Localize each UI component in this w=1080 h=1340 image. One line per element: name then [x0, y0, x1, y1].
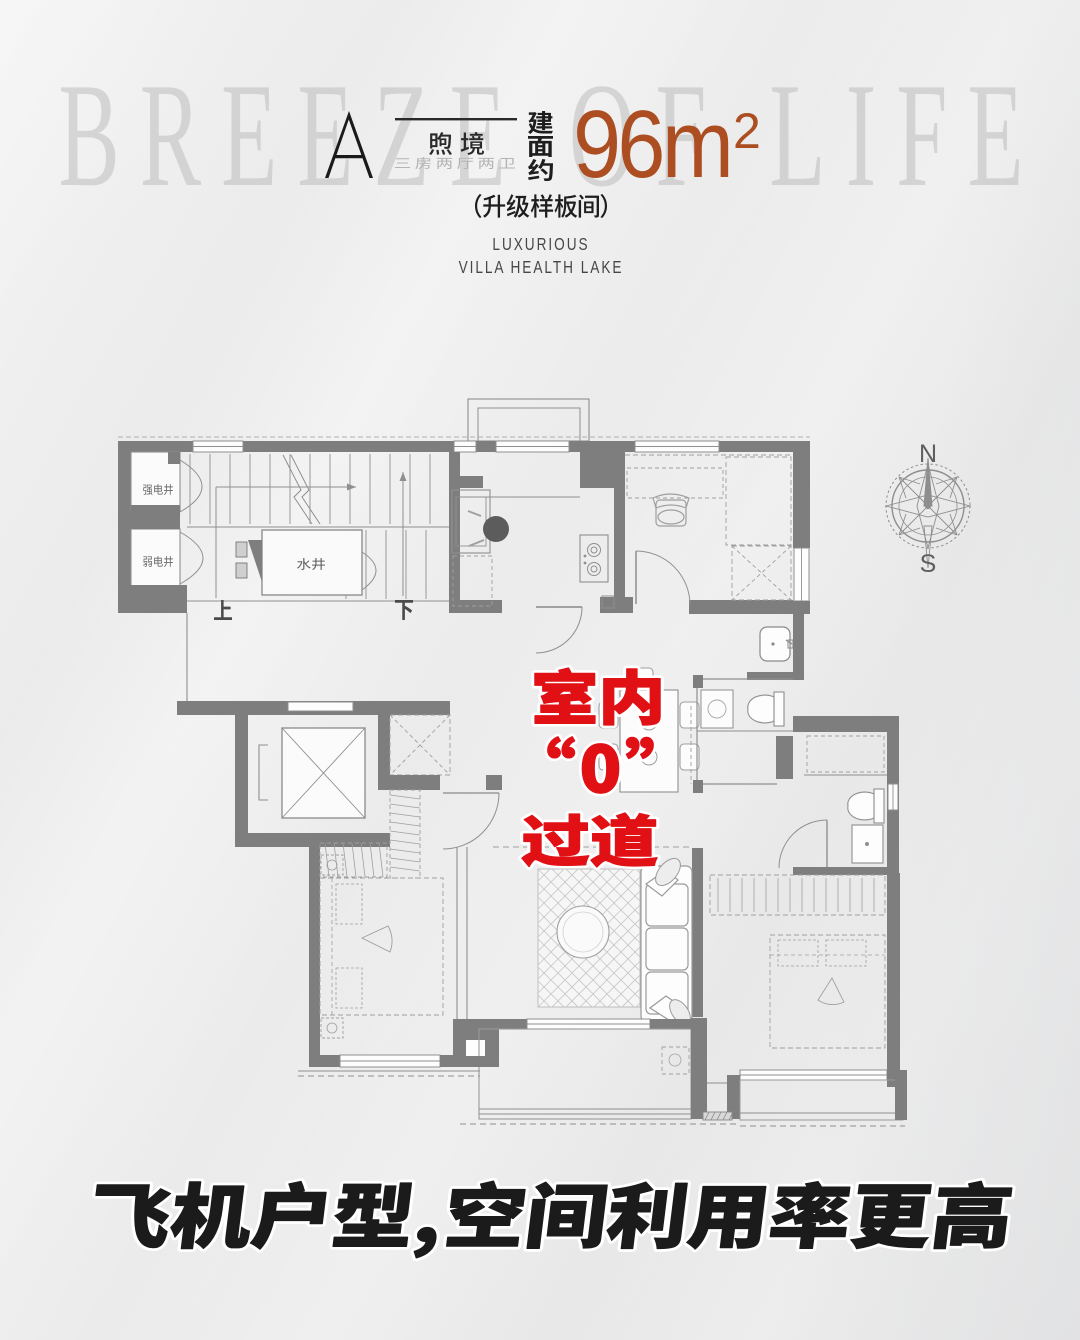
- svg-text:N: N: [919, 440, 937, 468]
- svg-text:LUXURIOUS: LUXURIOUS: [492, 236, 589, 255]
- svg-text:96m: 96m: [573, 91, 730, 198]
- svg-text:VILLA HEALTH LAKE: VILLA HEALTH LAKE: [459, 259, 624, 278]
- svg-text:2: 2: [733, 103, 761, 159]
- svg-text:S: S: [920, 550, 937, 578]
- svg-text:BREEZE OF LIFE: BREEZE OF LIFE: [58, 53, 1043, 218]
